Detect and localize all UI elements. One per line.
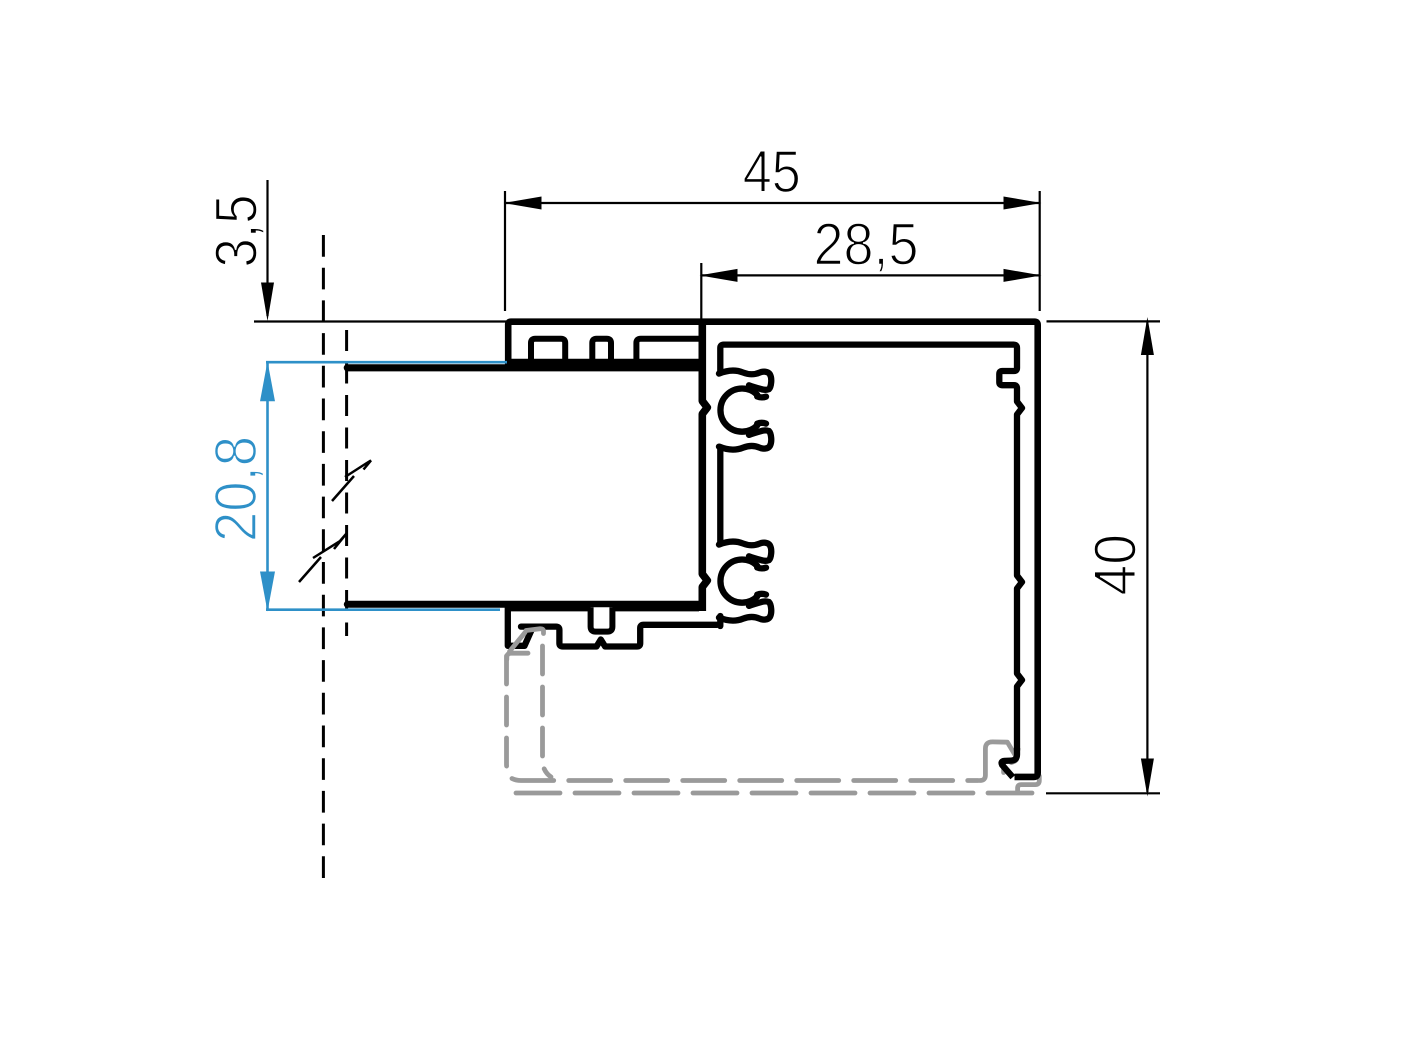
svg-text:3,5: 3,5 — [204, 195, 270, 268]
svg-text:40: 40 — [1083, 534, 1149, 596]
svg-text:28,5: 28,5 — [814, 212, 919, 278]
svg-text:20,8: 20,8 — [203, 436, 269, 542]
svg-text:45: 45 — [743, 139, 801, 205]
